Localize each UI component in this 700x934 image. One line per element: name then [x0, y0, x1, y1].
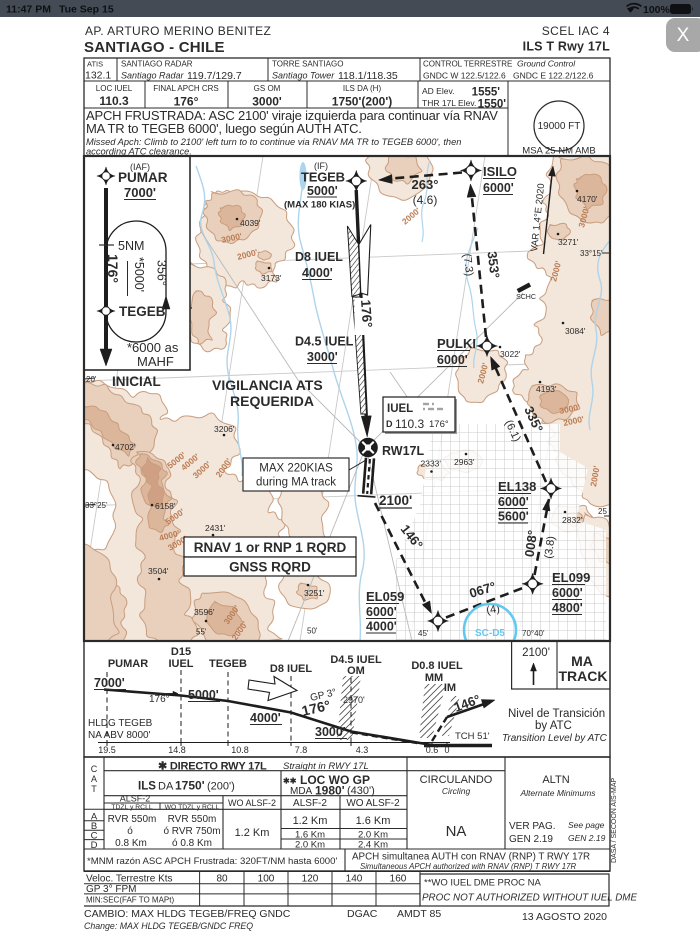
svg-text:6000': 6000' [437, 353, 468, 367]
svg-text:3000': 3000' [252, 95, 282, 109]
svg-text:TEGEB: TEGEB [119, 304, 166, 319]
svg-text:IUEL: IUEL [387, 403, 413, 415]
svg-text:GNDC W 122.5/122.6: GNDC W 122.5/122.6 [423, 71, 506, 81]
svg-text:0.6: 0.6 [426, 745, 439, 755]
svg-text:GP 3° FPM: GP 3° FPM [86, 884, 137, 895]
svg-text:(430'): (430') [347, 785, 375, 797]
svg-text:TDZL y RCLL: TDZL y RCLL [111, 804, 153, 811]
svg-text:DGAC: DGAC [347, 908, 378, 920]
svg-text:4000': 4000' [250, 711, 281, 725]
svg-text:RNAV 1 or RNP 1 RQRD: RNAV 1 or RNP 1 RQRD [194, 540, 347, 555]
svg-text:1.6 Km: 1.6 Km [356, 815, 391, 827]
svg-text:HLDG TEGEB: HLDG TEGEB [88, 718, 153, 729]
svg-text:MAX 220KIAS: MAX 220KIAS [259, 463, 333, 475]
svg-text:RVR 550m: RVR 550m [168, 814, 217, 825]
svg-text:APCH simultanea AUTH con RNAV: APCH simultanea AUTH con RNAV (RNP) T RW… [352, 852, 590, 863]
svg-text:during MA track: during MA track [256, 477, 336, 489]
svg-text:D8 IUEL: D8 IUEL [295, 250, 343, 264]
svg-text:11:47 PM: 11:47 PM [6, 4, 51, 16]
svg-text:110.3: 110.3 [99, 94, 129, 108]
svg-text:GEN 2.19: GEN 2.19 [509, 834, 553, 845]
svg-text:160: 160 [390, 874, 407, 885]
svg-text:4039': 4039' [240, 218, 261, 228]
svg-text:119.7/129.7: 119.7/129.7 [187, 70, 242, 82]
svg-text:GNSS RQRD: GNSS RQRD [229, 560, 311, 575]
svg-text:LOC IUEL: LOC IUEL [96, 84, 133, 93]
svg-text:4800': 4800' [552, 601, 583, 615]
svg-text:AMDT 85: AMDT 85 [397, 908, 441, 920]
svg-text:110.3: 110.3 [395, 417, 424, 431]
svg-text:SANTIAGO RADAR: SANTIAGO RADAR [121, 60, 193, 69]
svg-text:GNDC E 122.2/122.6: GNDC E 122.2/122.6 [513, 71, 594, 81]
svg-text:VER PAG.: VER PAG. [509, 821, 556, 832]
svg-text:PULKI: PULKI [437, 336, 476, 351]
svg-text:ó RVR 750m: ó RVR 750m [163, 826, 220, 837]
svg-text:176°: 176° [429, 419, 449, 430]
svg-text:X: X [677, 25, 690, 46]
svg-text:EL099: EL099 [552, 570, 590, 585]
svg-text:4170': 4170' [577, 194, 598, 204]
svg-text:See page: See page [568, 820, 605, 830]
svg-text:176°: 176° [105, 254, 121, 283]
svg-text:80: 80 [216, 874, 228, 885]
svg-text:0.8 Km: 0.8 Km [115, 838, 147, 849]
svg-text:*5000': *5000' [132, 257, 146, 292]
svg-text:3173': 3173' [261, 273, 282, 283]
svg-text:ALTN: ALTN [542, 774, 569, 786]
svg-text:ILS: ILS [138, 781, 156, 793]
svg-text:Santiago Tower: Santiago Tower [272, 71, 335, 81]
svg-text:C: C [91, 764, 98, 774]
svg-text:✱✱: ✱✱ [283, 777, 297, 786]
svg-text:PUMAR: PUMAR [118, 170, 168, 185]
svg-text:NA ABV 8000': NA ABV 8000' [88, 730, 151, 741]
svg-text:*MNM razón ASC APCH Frustrada:: *MNM razón ASC APCH Frustrada: 320FT/NM … [87, 856, 337, 867]
svg-text:3022': 3022' [500, 349, 521, 359]
svg-text:5600': 5600' [498, 510, 529, 524]
svg-text:ILS T Rwy 17L: ILS T Rwy 17L [523, 40, 611, 54]
svg-text:0: 0 [444, 745, 449, 755]
svg-text:Santiago Radar: Santiago Radar [121, 71, 185, 81]
svg-text:100%: 100% [643, 4, 671, 16]
svg-text:176°: 176° [174, 95, 199, 109]
svg-text:2100': 2100' [379, 493, 412, 508]
svg-text:4000': 4000' [302, 266, 333, 280]
svg-text:INICIAL: INICIAL [112, 374, 161, 389]
svg-text:CIRCULANDO: CIRCULANDO [420, 774, 493, 786]
svg-text:ó 0.8 Km: ó 0.8 Km [172, 838, 212, 849]
svg-text:6000': 6000' [366, 605, 397, 619]
svg-text:4000': 4000' [366, 620, 397, 634]
svg-text:GS OM: GS OM [254, 84, 281, 93]
svg-text:70°40': 70°40' [522, 629, 545, 638]
svg-text:2.0 Km: 2.0 Km [295, 840, 325, 851]
svg-text:ó: ó [127, 826, 133, 837]
svg-text:AP. ARTURO MERINO BENITEZ: AP. ARTURO MERINO BENITEZ [85, 24, 271, 38]
svg-text:10.8: 10.8 [231, 745, 249, 755]
svg-text:MA: MA [571, 653, 593, 669]
svg-text:Alternate Minimums: Alternate Minimums [519, 788, 596, 798]
svg-text:Veloc. Terrestre Kts: Veloc. Terrestre Kts [86, 874, 173, 885]
svg-text:IUEL: IUEL [168, 658, 193, 670]
svg-text:NA: NA [446, 823, 467, 840]
svg-text:PROC NOT AUTHORIZED WITHOUT IU: PROC NOT AUTHORIZED WITHOUT IUEL DME [422, 893, 637, 904]
svg-text:MSA 25 NM AMB: MSA 25 NM AMB [522, 146, 595, 157]
svg-text:(4.6): (4.6) [413, 193, 438, 207]
svg-text:WO TDZL y RCLL: WO TDZL y RCLL [165, 804, 220, 811]
svg-text:RW17L: RW17L [382, 444, 425, 458]
svg-text:3596': 3596' [194, 607, 215, 617]
svg-text:4702': 4702' [115, 442, 136, 452]
svg-text:1555': 1555' [472, 87, 501, 99]
svg-text:DA: DA [158, 781, 174, 793]
svg-text:5000': 5000' [188, 688, 219, 702]
svg-text:**WO IUEL DME PROC NA: **WO IUEL DME PROC NA [424, 878, 541, 889]
svg-text:ISILO: ISILO [483, 164, 517, 179]
svg-text:132.1: 132.1 [85, 70, 111, 82]
svg-text:RVR 550m: RVR 550m [108, 814, 157, 825]
svg-text:2100': 2100' [522, 647, 550, 659]
svg-text:1.2 Km: 1.2 Km [235, 827, 270, 839]
svg-text:14.8: 14.8 [168, 745, 186, 755]
svg-text:176°: 176° [149, 694, 170, 705]
svg-text:EL138: EL138 [498, 479, 536, 494]
svg-text:by ATC: by ATC [535, 720, 572, 732]
svg-text:33°25': 33°25' [85, 501, 108, 510]
svg-text:GEN 2.19: GEN 2.19 [568, 833, 606, 843]
svg-text:THR 17L Elev.: THR 17L Elev. [422, 98, 476, 108]
svg-text:6000': 6000' [552, 586, 583, 600]
svg-text:120: 120 [302, 874, 319, 885]
svg-text:D4.5 IUEL: D4.5 IUEL [295, 335, 354, 349]
svg-text:MIN:SEC(FAF TO MAPt): MIN:SEC(FAF TO MAPt) [86, 896, 174, 905]
svg-text:1750': 1750' [175, 779, 205, 793]
svg-text:176°: 176° [358, 299, 375, 328]
svg-text:CONTROL TERRESTRE: CONTROL TERRESTRE [423, 60, 512, 69]
svg-text:SC-D5: SC-D5 [475, 628, 505, 639]
svg-text:SCHC: SCHC [516, 294, 536, 301]
svg-text:D8 IUEL: D8 IUEL [270, 663, 312, 675]
svg-text:4193': 4193' [536, 384, 557, 394]
svg-text:✱ DIRECTO RWY 17L: ✱ DIRECTO RWY 17L [158, 761, 267, 773]
svg-text:TORRE SANTIAGO: TORRE SANTIAGO [272, 60, 343, 69]
svg-text:2333': 2333' [421, 459, 442, 469]
svg-text:Transition Level by ATC: Transition Level by ATC [502, 733, 608, 744]
svg-text:MDA: MDA [290, 786, 313, 797]
svg-text:FINAL APCH CRS: FINAL APCH CRS [153, 84, 219, 93]
svg-text:100: 100 [258, 874, 275, 885]
svg-text:20': 20' [86, 375, 97, 384]
svg-text:MAHF: MAHF [137, 354, 174, 369]
svg-text:356°: 356° [155, 260, 169, 286]
svg-text:13 AGOSTO 2020: 13 AGOSTO 2020 [522, 911, 607, 923]
svg-text:Nivel de Transición: Nivel de Transición [508, 708, 605, 720]
svg-text:3206': 3206' [214, 424, 235, 434]
svg-text:1750'(200'): 1750'(200') [332, 95, 392, 109]
svg-text:MM: MM [425, 672, 443, 684]
svg-text:D0.8 IUEL: D0.8 IUEL [411, 660, 463, 672]
svg-text:D: D [386, 419, 393, 429]
svg-text:TRACK: TRACK [559, 668, 608, 684]
svg-text:45': 45' [418, 629, 429, 638]
svg-text:VIGILANCIA ATS: VIGILANCIA ATS [212, 377, 323, 393]
svg-text:IM: IM [444, 682, 456, 694]
svg-text:ALSF-2: ALSF-2 [120, 794, 151, 804]
svg-text:T: T [91, 784, 97, 794]
svg-text:*6000 as: *6000 as [127, 340, 179, 355]
svg-text:REQUERIDA: REQUERIDA [230, 393, 314, 409]
svg-text:EL059: EL059 [366, 589, 404, 604]
svg-text:WO ALSF-2: WO ALSF-2 [346, 798, 400, 809]
svg-text:D: D [91, 840, 98, 851]
svg-text:MA TR to TEGEB 6000', luego se: MA TR to TEGEB 6000', luego según AUTH A… [86, 121, 362, 136]
svg-text:7.8: 7.8 [295, 745, 308, 755]
svg-text:Ground Control: Ground Control [517, 59, 576, 69]
svg-text:(MAX 180 KIAS): (MAX 180 KIAS) [284, 200, 355, 211]
svg-text:7000': 7000' [94, 676, 125, 690]
svg-text:3000': 3000' [307, 350, 338, 364]
svg-text:2963': 2963' [454, 457, 475, 467]
svg-text:Circling: Circling [442, 786, 471, 796]
svg-text:3504': 3504' [148, 566, 169, 576]
svg-text:PUMAR: PUMAR [108, 658, 148, 670]
svg-text:7000': 7000' [124, 185, 156, 200]
svg-text:5000': 5000' [307, 184, 338, 198]
svg-text:SCEL IAC 4: SCEL IAC 4 [542, 24, 610, 38]
svg-text:Straight in RWY 17L: Straight in RWY 17L [283, 761, 369, 772]
svg-text:263°: 263° [412, 177, 439, 192]
svg-text:4.3: 4.3 [356, 745, 369, 755]
svg-text:TCH 51': TCH 51' [455, 731, 490, 742]
svg-text:SANTIAGO - CHILE: SANTIAGO - CHILE [84, 39, 225, 56]
svg-text:2832': 2832' [562, 515, 583, 525]
svg-text:55': 55' [196, 628, 207, 637]
svg-text:3084': 3084' [565, 326, 586, 336]
svg-text:CAMBIO: MAX HLDG TEGEB/FREQ GN: CAMBIO: MAX HLDG TEGEB/FREQ GNDC [84, 908, 291, 920]
svg-text:ILS DA (H): ILS DA (H) [343, 84, 382, 93]
svg-text:6158': 6158' [155, 501, 176, 511]
svg-text:WO ALSF-2: WO ALSF-2 [228, 798, 276, 808]
svg-text:5NM: 5NM [118, 239, 144, 253]
svg-text:2970': 2970' [343, 695, 365, 705]
svg-text:AD Elev.: AD Elev. [422, 86, 454, 96]
svg-text:Missed Apch: Climb to 2100' le: Missed Apch: Climb to 2100' left turn to… [86, 137, 461, 147]
svg-text:Change: MAX HLDG TEGEB/GNDC F: Change: MAX HLDG TEGEB/GNDC FREQ [84, 921, 253, 931]
svg-text:19.5: 19.5 [98, 745, 116, 755]
svg-text:A: A [91, 774, 97, 784]
svg-text:ATIS: ATIS [87, 60, 103, 69]
svg-text:DASA / SECOON AIS-MAP: DASA / SECOON AIS-MAP [611, 777, 618, 863]
svg-text:25: 25 [598, 507, 607, 516]
svg-text:3000': 3000' [315, 725, 346, 739]
svg-text:50': 50' [307, 627, 318, 636]
svg-text:118.1/118.35: 118.1/118.35 [338, 70, 398, 82]
svg-text:6000': 6000' [498, 495, 529, 509]
svg-text:Tue Sep 15: Tue Sep 15 [59, 4, 114, 16]
svg-text:TEGEB: TEGEB [301, 170, 345, 185]
svg-text:6000': 6000' [483, 181, 514, 195]
svg-text:2431': 2431' [205, 523, 226, 533]
svg-text:D15: D15 [171, 646, 191, 658]
svg-text:(200'): (200') [207, 781, 235, 793]
svg-text:1980': 1980' [315, 784, 345, 798]
svg-text:1.2 Km: 1.2 Km [293, 815, 328, 827]
svg-text:3271': 3271' [558, 237, 579, 247]
svg-text:2.4 Km: 2.4 Km [358, 840, 388, 851]
svg-text:3251': 3251' [304, 588, 325, 598]
svg-text:33°15': 33°15' [580, 249, 603, 258]
svg-text:19000 FT: 19000 FT [538, 121, 581, 132]
svg-text:140: 140 [346, 874, 363, 885]
svg-text:Simultaneous APCH authorized w: Simultaneous APCH authorized with RNAV (… [360, 862, 576, 871]
svg-text:TEGEB: TEGEB [209, 658, 247, 670]
svg-text:OM: OM [347, 665, 365, 677]
svg-text:ALSF-2: ALSF-2 [293, 798, 327, 809]
